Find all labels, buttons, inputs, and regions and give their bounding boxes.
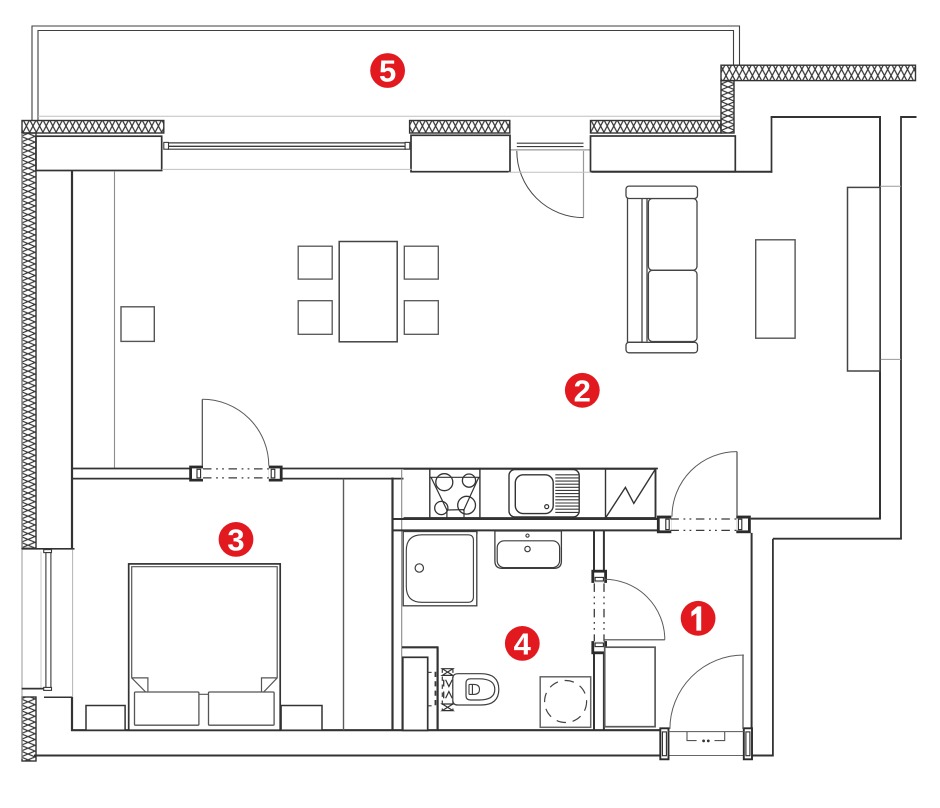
svg-text:2: 2: [574, 373, 591, 408]
svg-text:5: 5: [379, 54, 396, 89]
svg-text:4: 4: [514, 626, 532, 661]
svg-text:3: 3: [227, 522, 244, 557]
